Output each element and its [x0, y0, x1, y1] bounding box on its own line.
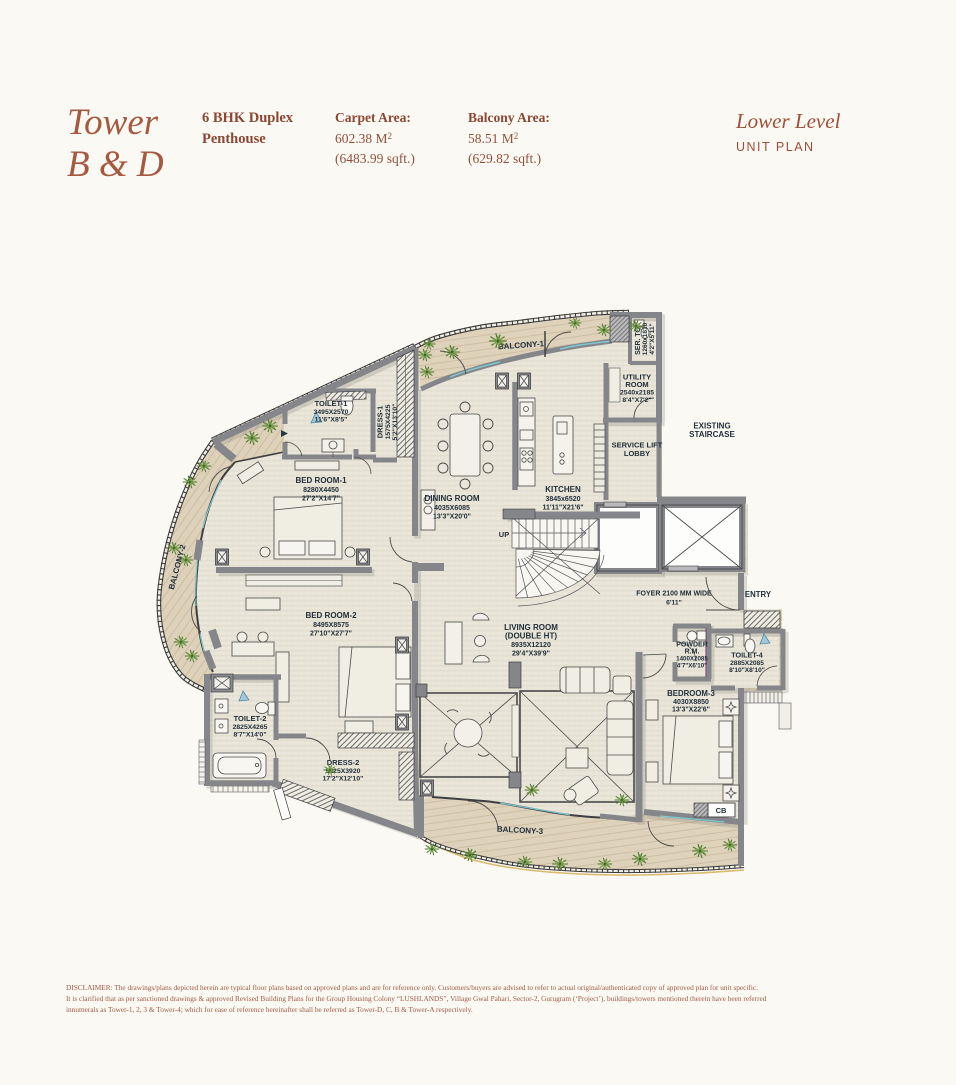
- svg-text:27'10"X27'7": 27'10"X27'7": [310, 630, 352, 637]
- svg-text:8495X8575: 8495X8575: [313, 622, 349, 629]
- svg-text:58.51 M2: 58.51 M2: [468, 131, 518, 146]
- svg-text:6 BHK Duplex: 6 BHK Duplex: [202, 110, 294, 126]
- svg-text:innumerals as Tower-1, 2, 3 &: innumerals as Tower-1, 2, 3 & Tower-4; w…: [66, 1005, 473, 1014]
- svg-text:(DOUBLE HT): (DOUBLE HT): [505, 632, 557, 641]
- svg-text:17'2"X12'10": 17'2"X12'10": [323, 776, 364, 783]
- svg-text:4'7"X6'10": 4'7"X6'10": [677, 662, 707, 669]
- svg-text:27'2"X14'7": 27'2"X14'7": [302, 495, 340, 502]
- svg-text:(629.82 sqft.): (629.82 sqft.): [468, 151, 541, 166]
- svg-text:POWDER: POWDER: [676, 641, 708, 648]
- svg-text:13'3"X22'6": 13'3"X22'6": [672, 707, 710, 714]
- svg-text:UNIT PLAN: UNIT PLAN: [736, 140, 815, 154]
- svg-text:It is clarified that as per sa: It is clarified that as per sanctioned d…: [66, 994, 767, 1003]
- svg-text:Penthouse: Penthouse: [202, 131, 266, 147]
- svg-text:8'4"X7'2": 8'4"X7'2": [622, 397, 651, 404]
- svg-text:R.M.: R.M.: [685, 648, 700, 655]
- svg-text:BEDROOM-3: BEDROOM-3: [667, 689, 715, 698]
- svg-text:Carpet Area:: Carpet Area:: [335, 110, 411, 125]
- svg-text:4035X6085: 4035X6085: [434, 505, 470, 512]
- svg-text:6'11": 6'11": [666, 599, 682, 606]
- svg-text:1260x1810: 1260x1810: [642, 322, 649, 355]
- svg-text:11'11"X21'6": 11'11"X21'6": [542, 504, 583, 511]
- svg-text:1400X2085: 1400X2085: [676, 655, 708, 662]
- svg-text:FOYER 2100 MM WIDE: FOYER 2100 MM WIDE: [636, 590, 712, 597]
- svg-text:2885X2085: 2885X2085: [730, 660, 764, 667]
- svg-text:BED ROOM-1: BED ROOM-1: [295, 476, 347, 485]
- svg-text:Tower: Tower: [67, 102, 159, 143]
- svg-text:STAIRCASE: STAIRCASE: [689, 430, 735, 439]
- svg-text:29'4"X39'9": 29'4"X39'9": [512, 650, 550, 657]
- svg-text:Balcony Area:: Balcony Area:: [468, 110, 550, 125]
- svg-text:2825X4265: 2825X4265: [233, 724, 268, 731]
- svg-text:3845x6520: 3845x6520: [545, 496, 580, 503]
- svg-text:8280X4450: 8280X4450: [303, 487, 339, 494]
- svg-text:BED ROOM-2: BED ROOM-2: [305, 611, 357, 620]
- svg-text:1575X4225: 1575X4225: [385, 404, 392, 439]
- svg-text:UP: UP: [499, 530, 509, 539]
- svg-text:602.38 M2: 602.38 M2: [335, 131, 392, 146]
- svg-text:CB: CB: [716, 806, 727, 815]
- svg-text:DRESS-1: DRESS-1: [375, 406, 384, 439]
- svg-text:8'10"X8'10": 8'10"X8'10": [729, 667, 765, 674]
- svg-text:B & D: B & D: [67, 144, 164, 185]
- svg-text:4'2"X5'11": 4'2"X5'11": [649, 323, 656, 354]
- svg-text:LOBBY: LOBBY: [624, 449, 650, 458]
- svg-text:11'6"X8'5": 11'6"X8'5": [315, 417, 348, 424]
- svg-text:8'7"X14'0": 8'7"X14'0": [233, 732, 266, 739]
- svg-text:3495X2570: 3495X2570: [314, 409, 349, 416]
- svg-text:ENTRY: ENTRY: [745, 590, 772, 599]
- svg-text:2540x2185: 2540x2185: [620, 390, 654, 397]
- svg-text:TOILET-1: TOILET-1: [315, 399, 348, 408]
- svg-text:TOILET-4: TOILET-4: [731, 651, 762, 660]
- svg-text:Lower Level: Lower Level: [735, 109, 841, 133]
- svg-text:8935X12120: 8935X12120: [511, 642, 551, 649]
- svg-text:KITCHEN: KITCHEN: [545, 485, 581, 494]
- svg-text:4030X8850: 4030X8850: [673, 699, 709, 706]
- svg-text:ROOM: ROOM: [625, 380, 648, 389]
- svg-text:TOILET-2: TOILET-2: [234, 714, 267, 723]
- svg-text:DISCLAIMER: The drawings/plans: DISCLAIMER: The drawings/plans depicted …: [66, 983, 758, 992]
- svg-text:DINING ROOM: DINING ROOM: [424, 494, 479, 503]
- svg-text:5'2"X13'10": 5'2"X13'10": [392, 404, 399, 441]
- svg-text:(6483.99 sqft.): (6483.99 sqft.): [335, 151, 415, 166]
- svg-text:13'3"X20'0": 13'3"X20'0": [433, 513, 471, 520]
